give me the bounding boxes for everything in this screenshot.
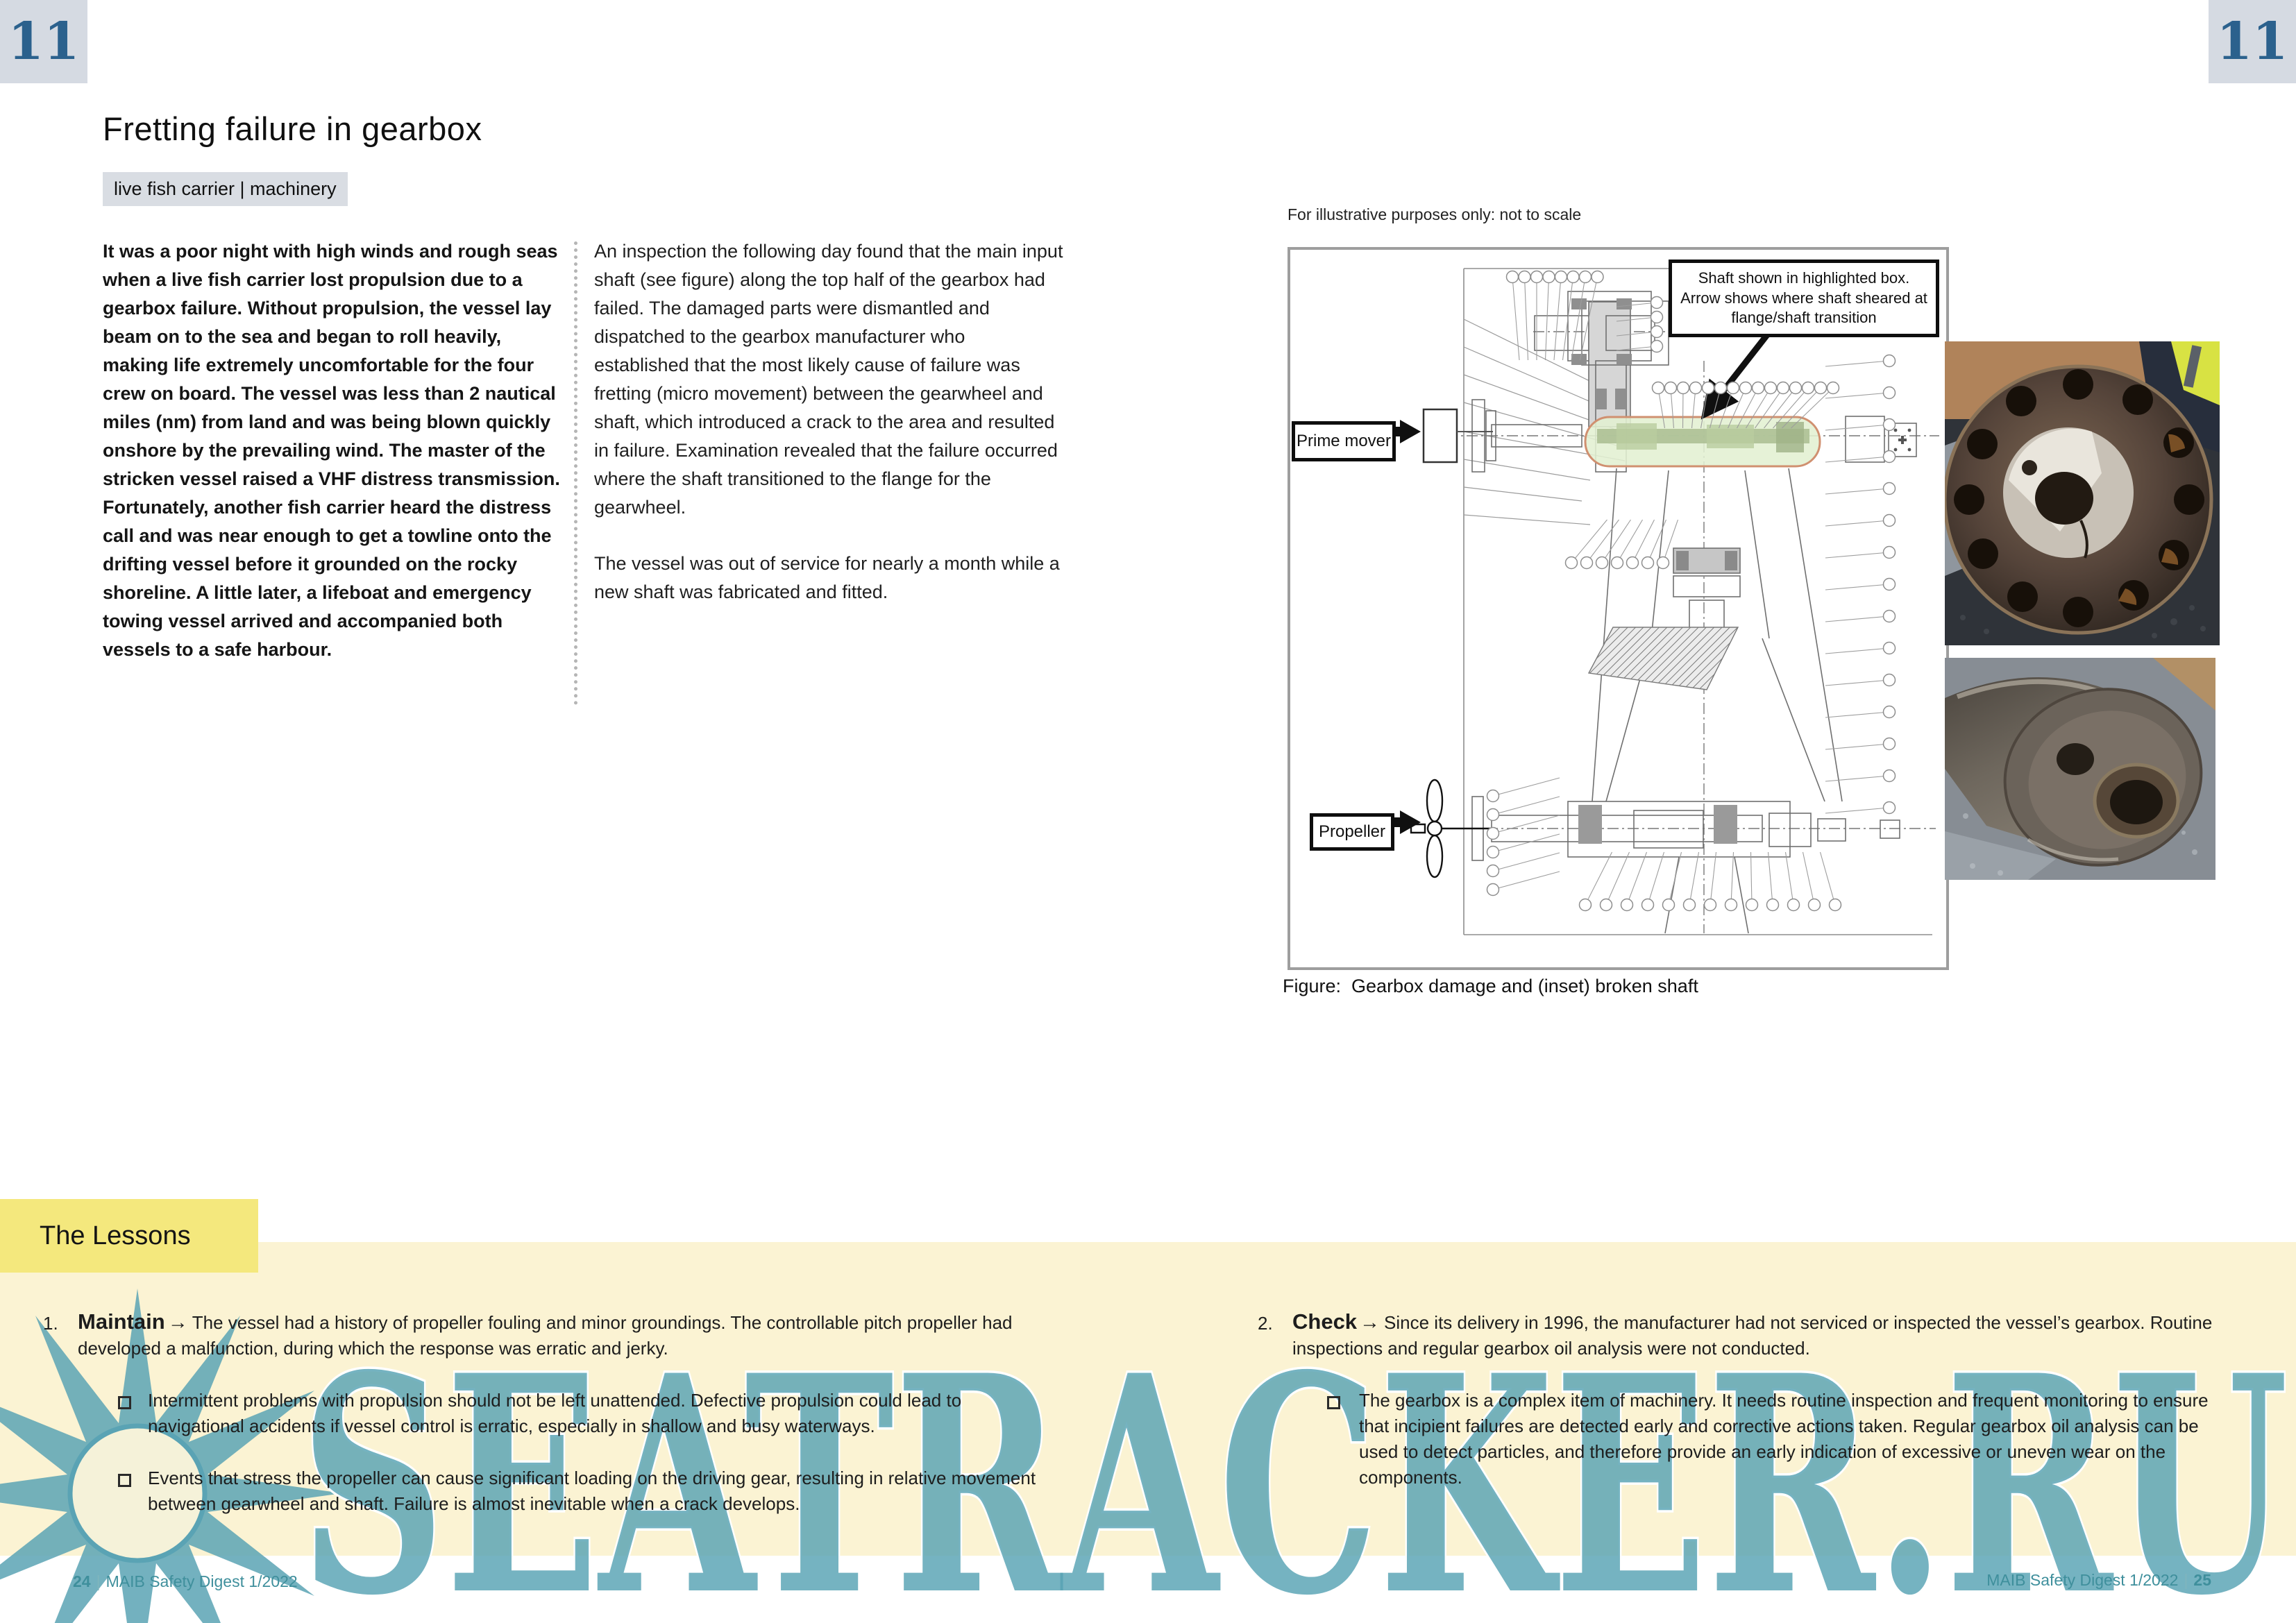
footer-page-number: 24 xyxy=(73,1572,91,1590)
story-paragraph: An inspection the following day found th… xyxy=(594,237,1063,522)
photo-broken-flange xyxy=(1945,341,2220,645)
footer-separator: | xyxy=(2178,1571,2193,1589)
footer-left: 24|MAIB Safety Digest 1/2022 xyxy=(73,1572,298,1591)
story-paragraph: The vessel was out of service for nearly… xyxy=(594,550,1063,606)
footer-separator: | xyxy=(91,1572,106,1590)
lessons-heading-box: The Lessons xyxy=(0,1199,258,1273)
lesson-keyword: Maintain xyxy=(78,1309,165,1334)
story-column-1: It was a poor night with high winds and … xyxy=(103,237,566,664)
lesson-item: Check→Since its delivery in 1996, the ma… xyxy=(1292,1309,2235,1361)
arrow-icon: → xyxy=(165,1311,192,1334)
bullet-square-icon xyxy=(118,1396,131,1409)
lesson-item: Maintain→The vessel had a history of pro… xyxy=(78,1309,1046,1361)
lesson-number: 2. xyxy=(1258,1313,1273,1334)
column-separator xyxy=(574,241,577,705)
arrow-icon: → xyxy=(1357,1311,1384,1334)
figure-caption: Figure: Gearbox damage and (inset) broke… xyxy=(1283,976,1698,997)
gearbox-technical-drawing xyxy=(1290,250,1946,967)
photo-broken-shaft xyxy=(1945,658,2215,880)
article-title: Fretting failure in gearbox xyxy=(103,110,482,148)
lesson-number: 1. xyxy=(43,1313,58,1334)
prime-mover-label: Prime mover xyxy=(1292,421,1396,461)
page-number-badge-left: 11 xyxy=(0,0,87,83)
figure-note: For illustrative purposes only: not to s… xyxy=(1288,205,1581,224)
lesson-bullet: Intermittent problems with propulsion sh… xyxy=(148,1388,1050,1439)
footer-right: MAIB Safety Digest 1/2022|25 xyxy=(1986,1571,2211,1590)
lesson-text: The vessel had a history of propeller fo… xyxy=(78,1312,1013,1359)
footer-text: MAIB Safety Digest 1/2022 xyxy=(106,1572,298,1590)
article-tag: live fish carrier | machinery xyxy=(103,172,348,206)
bullet-square-icon xyxy=(1327,1396,1340,1409)
lessons-heading: The Lessons xyxy=(40,1221,191,1251)
propeller-label: Propeller xyxy=(1310,813,1394,851)
figure-annotation-box: Shaft shown in highlighted box. Arrow sh… xyxy=(1669,260,1939,337)
part-number-callouts xyxy=(1487,271,1896,911)
lesson-bullet: The gearbox is a complex item of machine… xyxy=(1359,1388,2235,1490)
lesson-keyword: Check xyxy=(1292,1309,1357,1334)
figure-box: Shaft shown in highlighted box. Arrow sh… xyxy=(1288,247,1949,970)
story-column-2: An inspection the following day found th… xyxy=(594,237,1063,606)
lesson-bullet: Events that stress the propeller can cau… xyxy=(148,1465,1061,1517)
lesson-text: Since its delivery in 1996, the manufact… xyxy=(1292,1312,2212,1359)
footer-page-number: 25 xyxy=(2193,1571,2211,1589)
page-number-badge-right: 11 xyxy=(2209,0,2296,83)
propeller-icon xyxy=(1411,780,1493,877)
footer-text: MAIB Safety Digest 1/2022 xyxy=(1986,1571,2178,1589)
highlighted-shaft-region xyxy=(1585,417,1820,466)
bullet-square-icon xyxy=(118,1474,131,1487)
